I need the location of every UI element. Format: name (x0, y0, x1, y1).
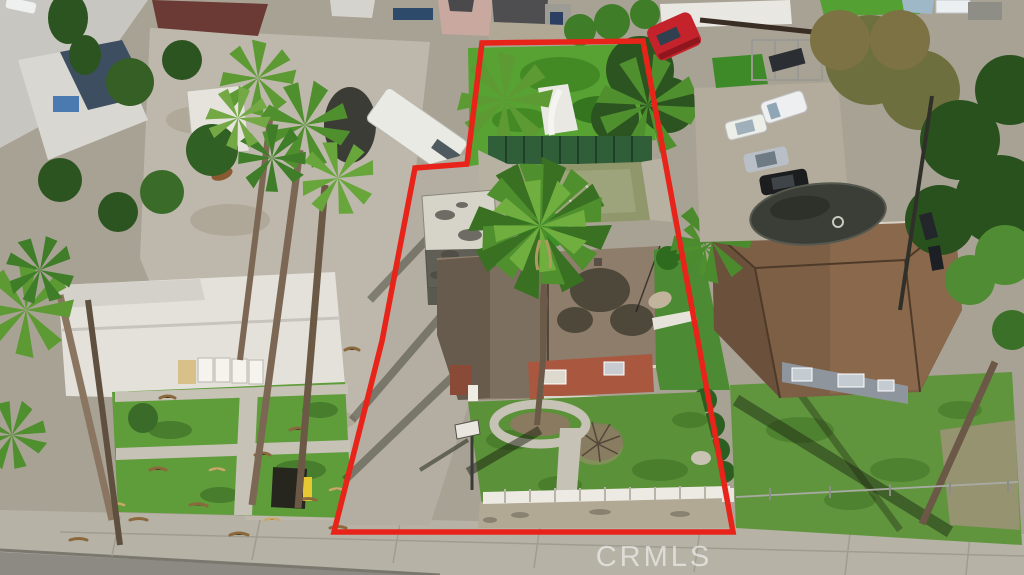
scene-canvas: CRMLS (0, 0, 1024, 575)
side-door (468, 385, 478, 401)
white-roof-top (330, 0, 375, 18)
boulder-front (691, 451, 711, 465)
green-court-fence (488, 136, 652, 164)
navy-tarp (550, 12, 563, 25)
white-rv-top-right (936, 0, 970, 13)
window-1 (792, 368, 812, 381)
roof-vent (594, 258, 602, 266)
charcoal-roof (492, 0, 548, 24)
dark-roof-bit (448, 0, 474, 12)
aerial-photo: CRMLS (0, 0, 1024, 575)
window-3 (878, 380, 894, 391)
crmls-watermark: CRMLS (596, 541, 713, 573)
dark-blue-awning (393, 8, 433, 20)
gray-building (968, 2, 1002, 20)
blue-tarp (53, 96, 79, 112)
dirt-patch (940, 420, 1020, 530)
carport-panels (178, 358, 263, 384)
putting-green (712, 54, 768, 88)
front-window-right (604, 362, 624, 375)
round-bush (128, 403, 158, 433)
window-2 (838, 374, 864, 387)
